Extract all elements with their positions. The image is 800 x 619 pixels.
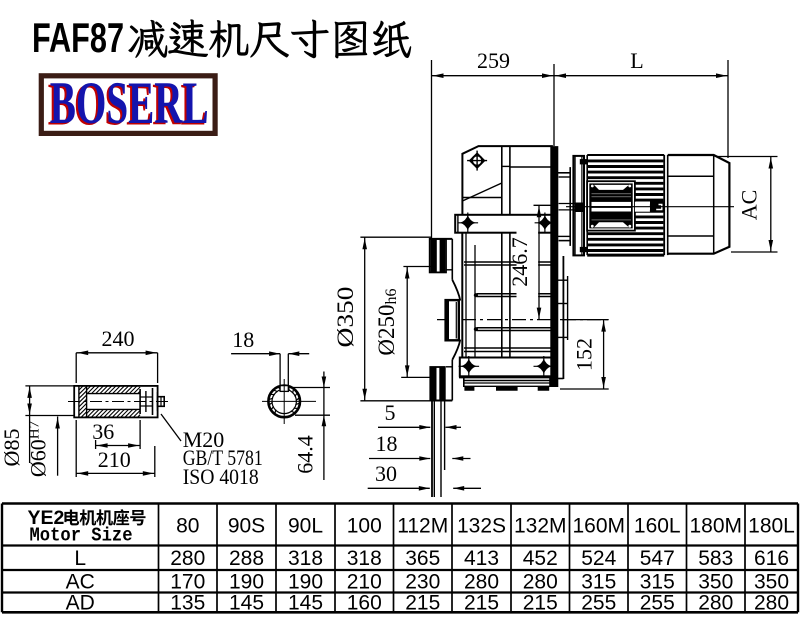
- svg-text:315: 315: [640, 571, 675, 594]
- svg-text:318: 318: [347, 547, 382, 570]
- svg-text:160L: 160L: [634, 515, 681, 538]
- svg-text:215: 215: [464, 592, 499, 615]
- svg-text:180M: 180M: [689, 515, 742, 538]
- svg-text:215: 215: [405, 592, 440, 615]
- svg-text:190: 190: [288, 571, 323, 594]
- svg-text:135: 135: [170, 592, 205, 615]
- svg-text:Ø85: Ø85: [0, 429, 24, 467]
- svg-text:100: 100: [347, 515, 382, 538]
- svg-text:L: L: [74, 547, 86, 570]
- svg-text:616: 616: [754, 547, 789, 570]
- svg-text:280: 280: [170, 547, 205, 570]
- svg-text:230: 230: [405, 571, 440, 594]
- svg-text:112M: 112M: [397, 515, 448, 538]
- svg-text:145: 145: [229, 592, 264, 615]
- svg-text:132S: 132S: [457, 515, 506, 538]
- svg-text:BOSERL: BOSERL: [50, 70, 209, 136]
- svg-text:36: 36: [92, 419, 114, 444]
- svg-text:452: 452: [523, 547, 558, 570]
- svg-text:288: 288: [229, 547, 264, 570]
- svg-text:190: 190: [229, 571, 264, 594]
- svg-text:145: 145: [288, 592, 323, 615]
- svg-text:132M: 132M: [514, 515, 567, 538]
- svg-text:524: 524: [581, 547, 616, 570]
- svg-text:318: 318: [288, 547, 323, 570]
- svg-text:80: 80: [176, 515, 199, 538]
- svg-text:280: 280: [523, 571, 558, 594]
- svg-text:280: 280: [464, 571, 499, 594]
- svg-text:583: 583: [698, 547, 733, 570]
- svg-text:160: 160: [347, 592, 382, 615]
- svg-text:246.7: 246.7: [507, 237, 532, 287]
- svg-text:350: 350: [698, 571, 733, 594]
- svg-text:315: 315: [581, 571, 616, 594]
- svg-text:170: 170: [170, 571, 205, 594]
- svg-text:30: 30: [375, 461, 397, 486]
- svg-text:AC: AC: [737, 190, 762, 221]
- svg-text:160M: 160M: [572, 515, 625, 538]
- svg-text:350: 350: [754, 571, 789, 594]
- svg-text:255: 255: [581, 592, 616, 615]
- svg-text:413: 413: [464, 547, 499, 570]
- svg-text:FAF87: FAF87: [32, 14, 124, 61]
- svg-text:547: 547: [640, 547, 675, 570]
- svg-text:90S: 90S: [228, 515, 265, 538]
- svg-text:5: 5: [385, 400, 396, 425]
- svg-text:180L: 180L: [748, 515, 795, 538]
- svg-text:L: L: [630, 48, 643, 73]
- svg-text:365: 365: [405, 547, 440, 570]
- svg-text:210: 210: [98, 447, 131, 472]
- svg-text:215: 215: [523, 592, 558, 615]
- svg-text:18: 18: [376, 431, 398, 456]
- svg-text:AD: AD: [66, 592, 95, 615]
- svg-text:18: 18: [232, 327, 254, 352]
- svg-text:280: 280: [754, 592, 789, 615]
- svg-text:255: 255: [640, 592, 675, 615]
- svg-text:90L: 90L: [288, 515, 323, 538]
- svg-text:280: 280: [698, 592, 733, 615]
- svg-text:259: 259: [477, 48, 510, 73]
- svg-text:AC: AC: [66, 571, 95, 594]
- svg-text:240: 240: [102, 326, 135, 351]
- svg-text:152: 152: [572, 338, 597, 371]
- svg-text:Motor Size: Motor Size: [30, 525, 133, 547]
- svg-text:210: 210: [347, 571, 382, 594]
- svg-text:64.4: 64.4: [293, 435, 318, 474]
- svg-text:ISO 4018: ISO 4018: [183, 464, 259, 489]
- svg-text:Ø350: Ø350: [333, 287, 358, 348]
